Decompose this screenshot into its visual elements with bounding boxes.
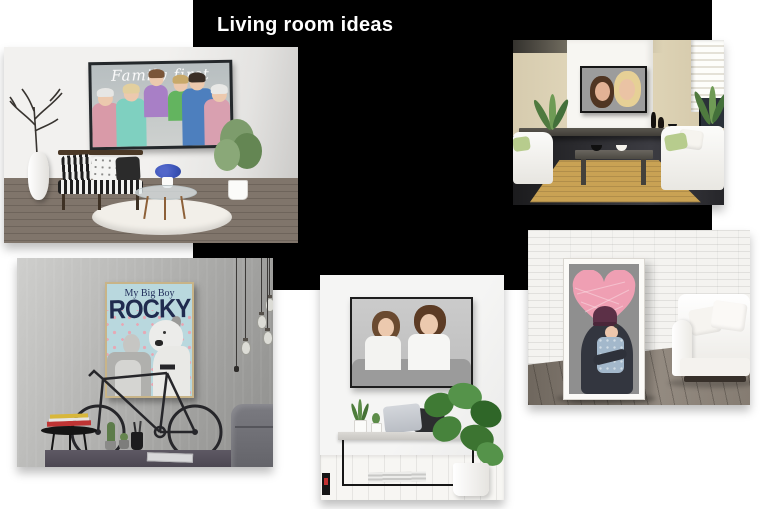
bulb-cord-4 (245, 258, 246, 338)
light-bulb-2 (257, 315, 267, 329)
pen-cup (131, 432, 143, 450)
striped-pillow-left (61, 154, 93, 182)
bench-seat-cushion (58, 180, 143, 194)
branch-tree (4, 85, 70, 155)
light-bulb-3 (263, 331, 273, 345)
bulb-cord-1 (269, 258, 270, 295)
baby-hair-bow (614, 324, 619, 328)
bulb-cap-3 (265, 328, 270, 331)
bulb-cap-2 (259, 312, 264, 315)
bench-leg-mid (98, 194, 101, 210)
light-bulb-4 (241, 341, 251, 355)
table-leg-b (164, 197, 166, 220)
girl-kid-shirt (365, 336, 401, 370)
mother-portrait-face (619, 79, 635, 100)
plant-foliage-3 (214, 139, 240, 171)
bulb-cord-2 (261, 258, 262, 312)
photo-family-living-room[interactable]: Family first (4, 47, 298, 243)
dark-pillow (115, 156, 140, 181)
photo-kids-portrait-room[interactable] (320, 275, 504, 500)
kids-photo (352, 299, 471, 386)
cactus-tall (107, 422, 115, 442)
magazine-stack (368, 471, 426, 482)
console-vase-short (658, 117, 664, 128)
grandmother-hair (211, 84, 228, 94)
bicycle (67, 353, 237, 463)
notebook (147, 452, 193, 463)
green-pillow-left (513, 136, 531, 152)
cactus-pot-tall (105, 441, 116, 450)
round-rug (92, 199, 232, 235)
heart-poster-art (569, 264, 639, 394)
armchair-base (684, 376, 746, 382)
portrait-frame (580, 66, 647, 113)
monstera-pot (453, 463, 489, 496)
collage-canvas: Living room ideas Family first (0, 0, 760, 509)
family-photo: Family first (91, 63, 230, 147)
dog-nose (155, 340, 163, 346)
plant-pot (228, 180, 248, 200)
boy-kid-face (420, 314, 438, 335)
bulb-cap-4 (243, 338, 248, 341)
glass-table-top (135, 185, 197, 200)
gray-cushion (383, 403, 423, 434)
heart-poster-frame (563, 258, 645, 400)
coffee-table-leg-left (581, 159, 586, 185)
armchair-pillow-right (710, 300, 748, 332)
girl-kid-face (378, 318, 394, 337)
family-photo-frame: Family first (88, 60, 234, 150)
portrait-photo (582, 68, 645, 111)
photo-portrait-living-room[interactable] (513, 40, 724, 205)
coffee-table-leg-right (641, 159, 646, 185)
daughter-face (595, 82, 610, 101)
patterned-pillow (91, 156, 118, 181)
bulb-cord-3 (267, 258, 268, 328)
watermark-red-mark (324, 478, 328, 485)
coffee-table-top (575, 150, 653, 159)
white-floor-vase (28, 152, 49, 200)
bench-frame-leg-left (342, 440, 344, 486)
armchair-seat-front (680, 358, 750, 376)
cactus-pot-ball (119, 440, 129, 449)
kids-photo-frame (350, 297, 473, 388)
page-title: Living room ideas (217, 14, 393, 37)
dog-eye (163, 331, 166, 334)
photo-heart-poster-room[interactable] (528, 230, 750, 405)
grandmother-figure (91, 63, 230, 147)
boy-kid-shirt (408, 334, 450, 370)
bench-back-rail (58, 150, 143, 155)
armchair-seam (235, 426, 273, 428)
gray-armchair-corner (231, 404, 273, 467)
bench-leg-left (62, 194, 65, 210)
console-vase-tall (651, 112, 656, 128)
photo-rocky-poster-room[interactable]: My Big Boy ROCKY (17, 258, 273, 467)
